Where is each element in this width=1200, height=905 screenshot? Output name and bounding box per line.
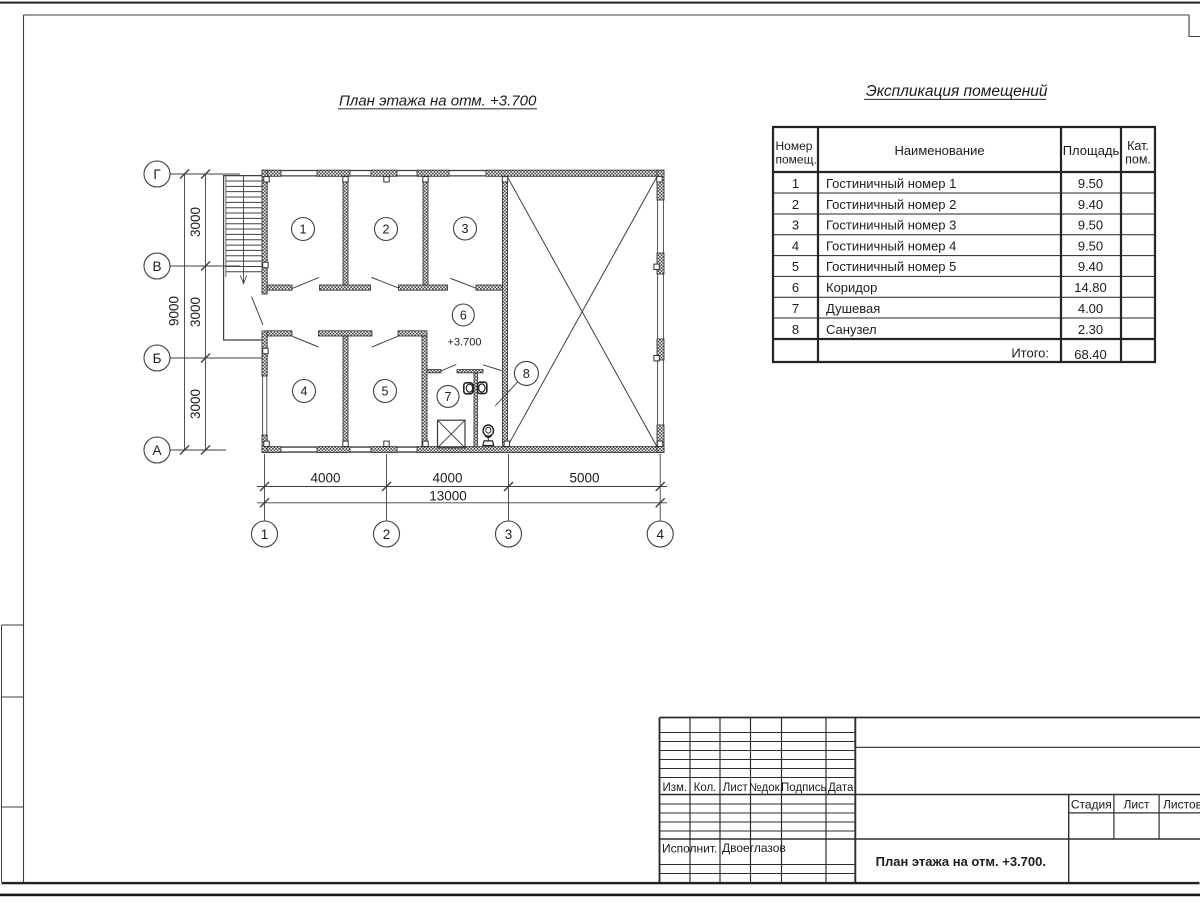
svg-text:3: 3 <box>792 218 799 233</box>
svg-text:Итого:: Итого: <box>1011 346 1049 361</box>
svg-text:9.50: 9.50 <box>1078 218 1103 233</box>
svg-text:Гостиничный номер 1: Гостиничный номер 1 <box>826 176 956 191</box>
svg-text:6: 6 <box>460 309 467 323</box>
svg-text:9000: 9000 <box>167 296 182 326</box>
svg-text:Двоеглазов: Двоеглазов <box>722 841 786 855</box>
svg-text:Гостиничный номер 4: Гостиничный номер 4 <box>826 238 956 253</box>
svg-text:14.80: 14.80 <box>1074 280 1107 295</box>
svg-text:5000: 5000 <box>569 471 599 486</box>
svg-text:План этажа на отм. +3.700.: План этажа на отм. +3.700. <box>876 854 1046 869</box>
svg-text:1: 1 <box>792 176 799 191</box>
svg-text:4: 4 <box>301 385 308 399</box>
svg-text:Изм.: Изм. <box>662 782 687 794</box>
svg-text:Подпись: Подпись <box>781 782 827 794</box>
svg-text:В: В <box>152 259 161 274</box>
svg-text:5: 5 <box>792 259 799 274</box>
svg-text:2: 2 <box>383 527 391 542</box>
svg-text:Наименование: Наименование <box>894 143 984 158</box>
svg-text:Экспликация помещений: Экспликация помещений <box>866 83 1048 100</box>
svg-text:пом.: пом. <box>1125 153 1151 167</box>
svg-text:4: 4 <box>792 238 799 253</box>
svg-text:9.50: 9.50 <box>1078 176 1103 191</box>
svg-text:9.40: 9.40 <box>1078 197 1103 212</box>
svg-text:7: 7 <box>792 301 799 316</box>
svg-text:9.50: 9.50 <box>1078 238 1103 253</box>
svg-text:2.30: 2.30 <box>1078 322 1103 337</box>
svg-text:Площадь: Площадь <box>1063 143 1120 158</box>
svg-text:3000: 3000 <box>188 297 203 327</box>
svg-text:9.40: 9.40 <box>1078 259 1103 274</box>
svg-text:5: 5 <box>382 385 389 399</box>
svg-text:№док.: №док. <box>749 782 783 794</box>
svg-text:Дата: Дата <box>828 782 854 794</box>
svg-text:4.00: 4.00 <box>1078 301 1103 316</box>
svg-text:4: 4 <box>656 527 664 542</box>
svg-text:4000: 4000 <box>432 471 462 486</box>
svg-text:1: 1 <box>261 527 269 542</box>
svg-text:8: 8 <box>523 367 530 381</box>
svg-text:Санузел: Санузел <box>826 322 877 337</box>
svg-text:Гостиничный номер 2: Гостиничный номер 2 <box>826 197 956 212</box>
svg-text:4000: 4000 <box>310 471 340 486</box>
svg-text:3: 3 <box>462 222 469 236</box>
svg-text:Стадия: Стадия <box>1071 798 1112 812</box>
svg-text:7: 7 <box>445 390 452 404</box>
svg-text:Б: Б <box>153 351 162 366</box>
svg-text:Гостиничный номер 3: Гостиничный номер 3 <box>826 218 956 233</box>
svg-text:Кат.: Кат. <box>1127 139 1149 153</box>
svg-text:1: 1 <box>300 223 307 237</box>
svg-text:А: А <box>152 443 161 458</box>
svg-text:Листов: Листов <box>1163 798 1200 812</box>
svg-text:3: 3 <box>505 527 513 542</box>
svg-text:План этажа на отм. +3.700: План этажа на отм. +3.700 <box>339 93 537 110</box>
svg-text:Кол.: Кол. <box>694 782 717 794</box>
svg-text:Номер: Номер <box>776 139 813 153</box>
svg-text:Лист: Лист <box>723 782 749 794</box>
svg-text:2: 2 <box>383 223 390 237</box>
svg-text:помещ.: помещ. <box>776 153 817 167</box>
svg-text:Лист: Лист <box>1123 798 1150 812</box>
svg-text:3000: 3000 <box>188 389 203 419</box>
svg-text:2: 2 <box>792 197 799 212</box>
svg-text:Исполнит.: Исполнит. <box>662 842 717 856</box>
svg-text:Г: Г <box>153 167 161 182</box>
svg-text:8: 8 <box>792 322 799 337</box>
svg-text:68.40: 68.40 <box>1074 347 1107 362</box>
svg-text:3000: 3000 <box>188 207 203 237</box>
svg-text:Душевая: Душевая <box>826 301 880 316</box>
svg-text:+3.700: +3.700 <box>448 337 482 349</box>
svg-text:6: 6 <box>792 280 799 295</box>
svg-text:13000: 13000 <box>429 489 467 504</box>
svg-text:Гостиничный номер 5: Гостиничный номер 5 <box>826 259 956 274</box>
svg-text:Коридор: Коридор <box>826 280 877 295</box>
